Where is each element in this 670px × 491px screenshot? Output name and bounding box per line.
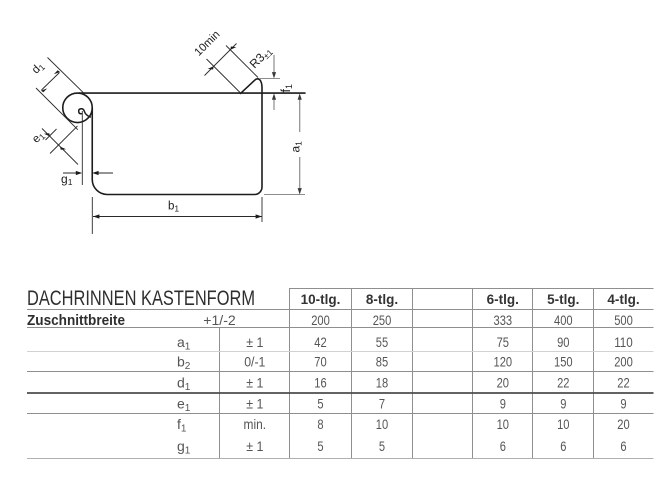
svg-text:10: 10 [376, 416, 389, 432]
svg-text:6: 6 [500, 438, 506, 454]
svg-text:DACHRINNEN KASTENFORM: DACHRINNEN KASTENFORM [27, 287, 255, 310]
svg-text:a1: a1 [177, 334, 191, 353]
svg-text:85: 85 [376, 354, 389, 370]
svg-text:9: 9 [560, 396, 566, 412]
svg-text:+1/-2: +1/-2 [203, 313, 236, 328]
svg-text:110: 110 [614, 334, 633, 350]
svg-text:10: 10 [557, 416, 570, 432]
svg-text:± 1: ± 1 [246, 375, 263, 391]
svg-text:4-tlg.: 4-tlg. [607, 292, 639, 307]
svg-text:5: 5 [317, 438, 323, 454]
svg-text:16: 16 [314, 375, 327, 391]
svg-text:6: 6 [560, 438, 566, 454]
svg-text:200: 200 [614, 354, 633, 370]
svg-text:g1: g1 [177, 438, 191, 457]
svg-text:± 1: ± 1 [246, 334, 263, 350]
svg-text:a1: a1 [289, 141, 304, 153]
svg-text:20: 20 [617, 416, 630, 432]
svg-text:10-tlg.: 10-tlg. [301, 292, 341, 307]
svg-text:18: 18 [376, 375, 389, 391]
svg-text:6-tlg.: 6-tlg. [487, 292, 519, 307]
svg-text:200: 200 [311, 312, 330, 328]
svg-text:42: 42 [314, 334, 327, 350]
svg-text:5: 5 [379, 438, 385, 454]
svg-text:min.: min. [244, 416, 267, 432]
svg-text:55: 55 [376, 334, 389, 350]
svg-text:f1: f1 [279, 84, 294, 93]
svg-text:500: 500 [614, 312, 633, 328]
svg-text:R3±1: R3±1 [247, 44, 275, 72]
svg-text:0/-1: 0/-1 [244, 354, 265, 370]
svg-text:20: 20 [497, 375, 510, 391]
svg-text:120: 120 [494, 354, 513, 370]
svg-text:± 1: ± 1 [246, 396, 263, 412]
svg-text:5: 5 [317, 396, 323, 412]
svg-text:10: 10 [497, 416, 510, 432]
svg-text:90: 90 [557, 334, 570, 350]
svg-text:d1: d1 [177, 375, 191, 394]
svg-text:150: 150 [554, 354, 573, 370]
svg-text:6: 6 [620, 438, 626, 454]
svg-text:9: 9 [500, 396, 506, 412]
svg-text:d1: d1 [30, 60, 47, 77]
svg-text:9: 9 [620, 396, 626, 412]
svg-text:Zuschnittbreite: Zuschnittbreite [27, 313, 125, 329]
svg-text:b1: b1 [168, 201, 179, 214]
svg-text:22: 22 [617, 375, 630, 391]
svg-text:± 1: ± 1 [246, 438, 263, 454]
svg-text:g1: g1 [61, 172, 73, 187]
svg-text:7: 7 [379, 396, 385, 412]
svg-text:250: 250 [373, 312, 392, 328]
svg-text:8-tlg.: 8-tlg. [366, 292, 398, 307]
svg-text:22: 22 [557, 375, 570, 391]
svg-text:8: 8 [317, 416, 323, 432]
svg-text:75: 75 [497, 334, 510, 350]
svg-text:5-tlg.: 5-tlg. [547, 292, 579, 307]
svg-text:b2: b2 [177, 354, 191, 373]
svg-text:10min: 10min [192, 29, 222, 59]
svg-text:e1: e1 [177, 396, 191, 415]
svg-text:400: 400 [554, 312, 573, 328]
svg-text:333: 333 [494, 312, 513, 328]
svg-text:f1: f1 [177, 416, 187, 435]
svg-text:70: 70 [314, 354, 327, 370]
